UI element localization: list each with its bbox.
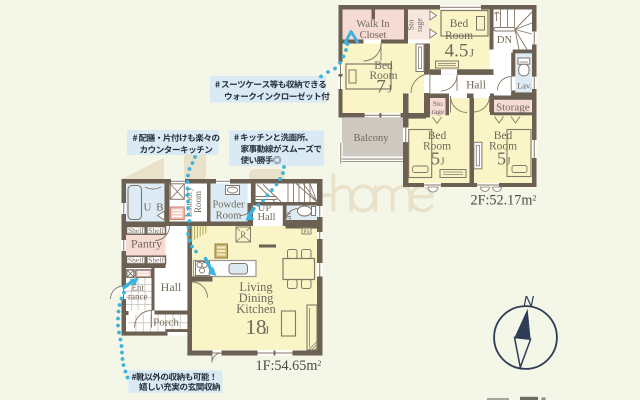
svg-text:2F:52.17m2: 2F:52.17m2 (471, 193, 537, 209)
svg-text:Lav.: Lav. (517, 81, 532, 91)
svg-text:Shelf: Shelf (128, 226, 144, 235)
svg-text:Hall: Hall (257, 212, 275, 223)
svg-text:Storage: Storage (496, 102, 530, 114)
svg-text:Porch: Porch (153, 317, 179, 329)
svg-text:Room: Room (193, 191, 203, 213)
svg-text:Kitchen: Kitchen (236, 302, 276, 316)
svg-text:Closet: Closet (360, 30, 387, 41)
svg-text:Pantry: Pantry (131, 237, 162, 251)
svg-text:J: J (265, 323, 270, 337)
svg-text:Shelf: Shelf (148, 256, 164, 265)
svg-text:1F:54.65m2: 1F:54.65m2 (256, 358, 322, 374)
svg-text:Lav.: Lav. (284, 210, 293, 224)
svg-text:rance: rance (128, 292, 147, 302)
svg-text:DN: DN (497, 35, 513, 46)
svg-text:7: 7 (376, 77, 386, 98)
svg-text:4.5: 4.5 (445, 40, 469, 61)
svg-text:Room: Room (216, 211, 242, 222)
svg-text:Powder: Powder (212, 200, 245, 211)
svg-text:Walk In: Walk In (356, 19, 390, 30)
svg-text:Shelf: Shelf (128, 256, 144, 265)
svg-text:J: J (470, 47, 475, 59)
svg-text:U B: U B (143, 202, 164, 214)
svg-text:PS: PS (303, 229, 309, 235)
svg-text:R: R (240, 230, 246, 240)
svg-text:N: N (523, 293, 534, 310)
svg-text:J: J (441, 157, 445, 168)
svg-text:J: J (507, 157, 511, 168)
svg-text:5: 5 (431, 149, 440, 169)
svg-text:18: 18 (246, 315, 267, 339)
svg-text:Hall: Hall (466, 80, 486, 92)
svg-text:Balcony: Balcony (354, 133, 390, 144)
svg-text:Bed: Bed (450, 18, 469, 30)
svg-text:Shelf: Shelf (148, 226, 164, 235)
svg-text:5: 5 (497, 149, 506, 169)
svg-text:J: J (388, 84, 393, 96)
svg-text:rage: rage (431, 107, 445, 116)
svg-text:rage: rage (415, 18, 424, 32)
svg-text:Hall: Hall (161, 280, 182, 294)
